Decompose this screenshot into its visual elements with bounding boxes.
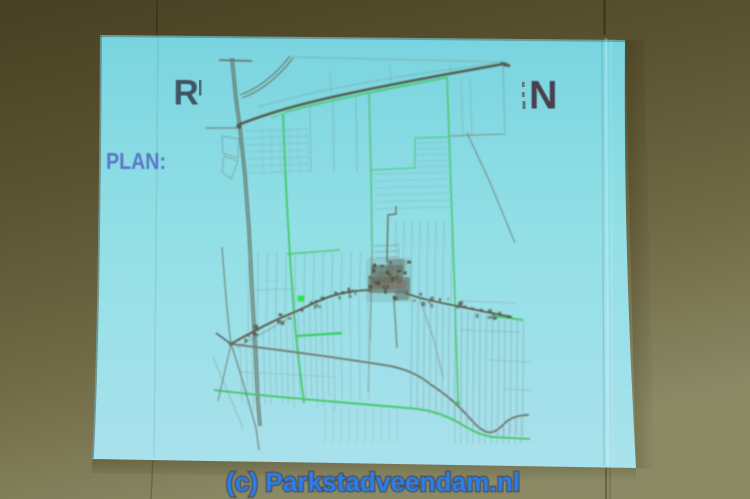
svg-text:(c) Parkstadveendam.nl: (c) Parkstadveendam.nl [226, 469, 520, 497]
svg-text:R: R [174, 73, 199, 112]
svg-text:PLAN:: PLAN: [106, 148, 166, 174]
svg-text:N: N [529, 73, 558, 117]
